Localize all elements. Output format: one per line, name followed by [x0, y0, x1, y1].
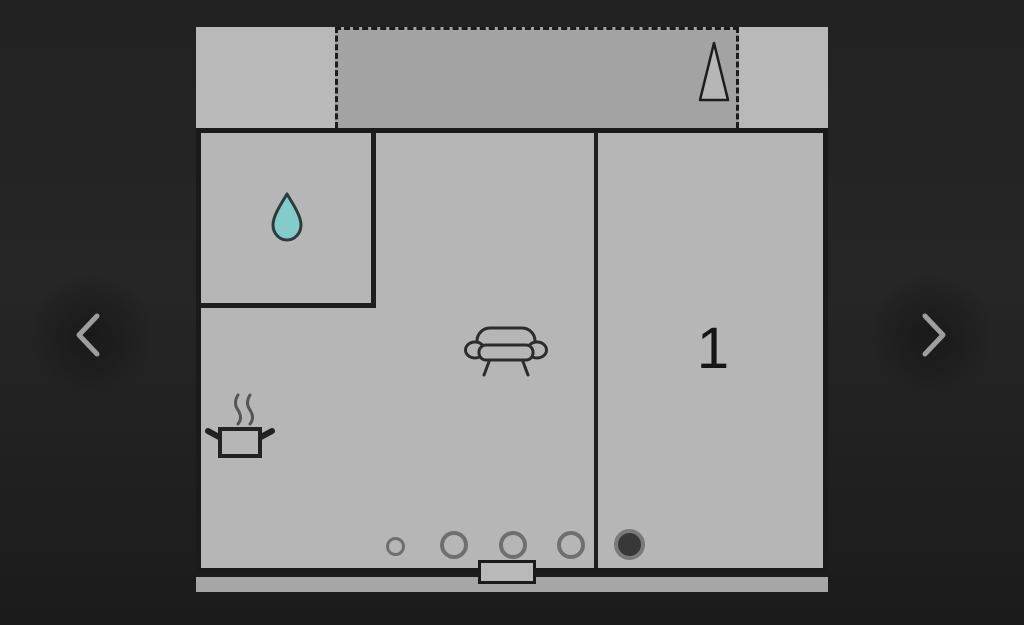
balcony-strip	[196, 27, 828, 128]
room-divider-wall	[594, 133, 598, 568]
filled-circle-marker	[614, 529, 645, 560]
next-image-button[interactable]	[904, 308, 958, 362]
cone-outline-icon	[698, 41, 730, 108]
water-drop-icon	[269, 191, 305, 248]
ring-marker	[557, 531, 585, 559]
chevron-right-icon	[904, 308, 958, 362]
chevron-left-icon	[64, 308, 118, 362]
ring-marker	[499, 531, 527, 559]
door-threshold	[478, 560, 536, 584]
floorplan-main-area: 1	[196, 128, 828, 573]
balcony-dashed-area	[335, 27, 739, 128]
room-number-label: 1	[683, 319, 743, 379]
prev-image-button[interactable]	[64, 308, 118, 362]
floorplan-image: 1	[196, 27, 828, 592]
sofa-icon	[464, 325, 550, 386]
bathroom-wall-bottom	[201, 303, 376, 308]
steaming-pot-icon	[205, 391, 275, 466]
ring-marker-small	[386, 537, 405, 556]
bathroom-wall-right	[371, 133, 376, 308]
ring-marker	[440, 531, 468, 559]
